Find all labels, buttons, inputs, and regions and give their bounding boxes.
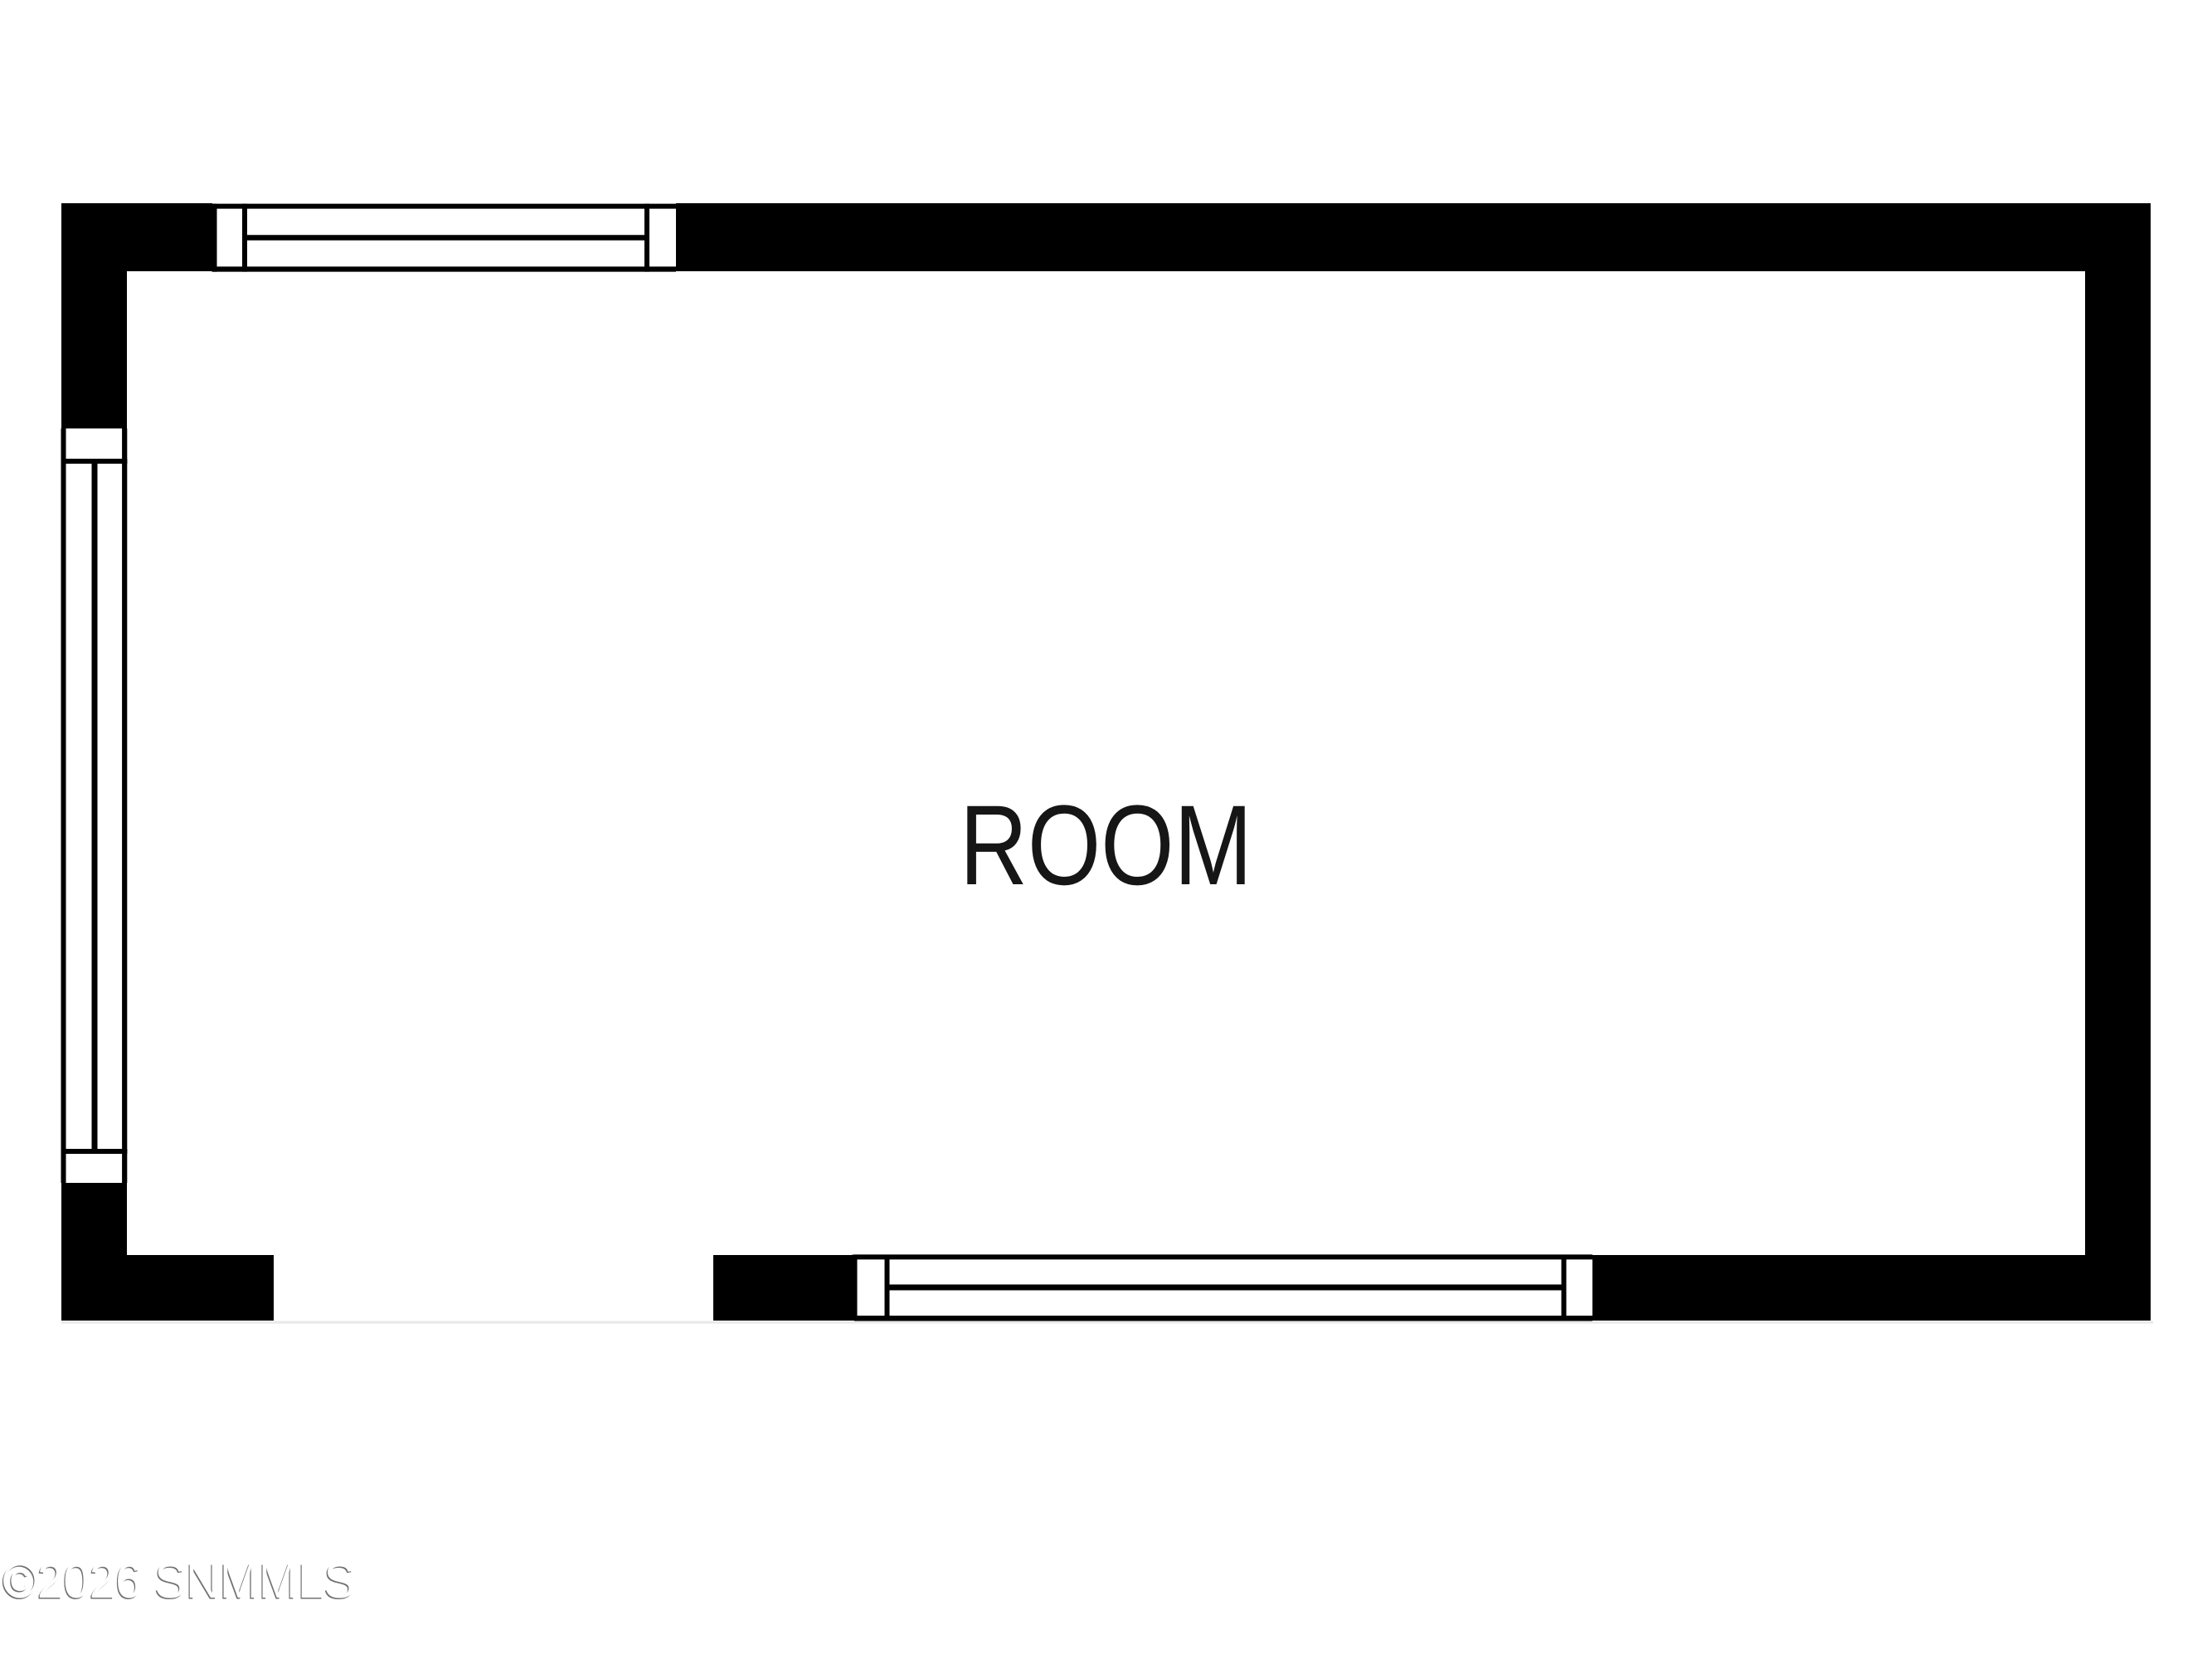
svg-text:©2026 SNMMLS: ©2026 SNMMLS bbox=[2, 1554, 355, 1608]
svg-text:ROOM: ROOM bbox=[960, 782, 1252, 909]
